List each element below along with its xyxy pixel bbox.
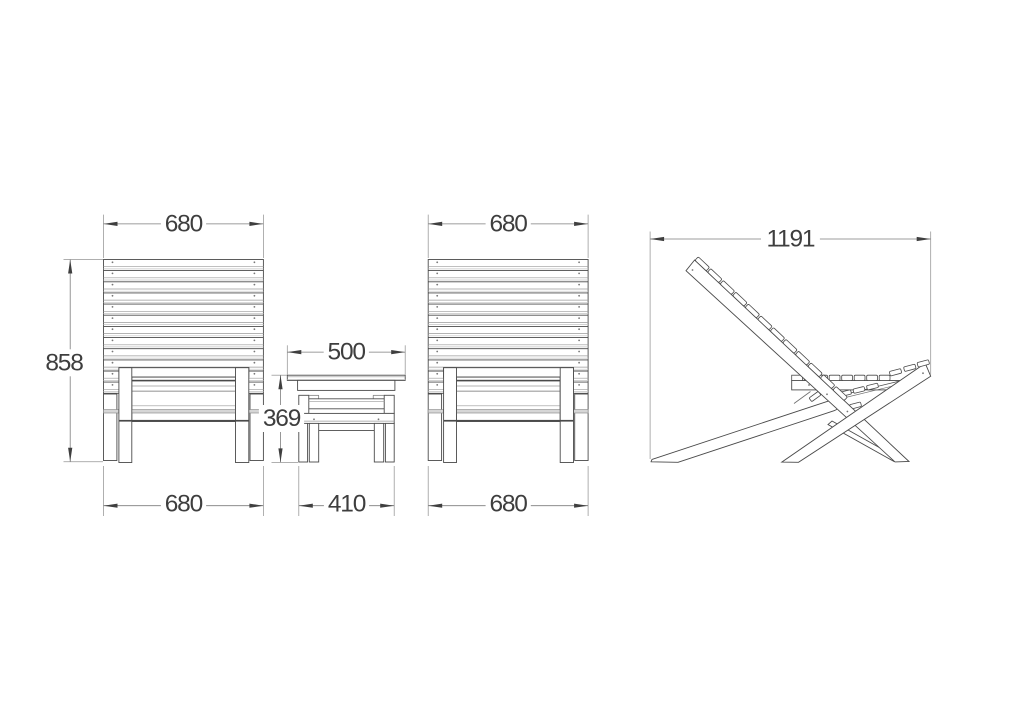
svg-text:369: 369 xyxy=(263,405,301,432)
svg-text:680: 680 xyxy=(489,491,527,518)
svg-text:1191: 1191 xyxy=(766,226,814,253)
svg-text:858: 858 xyxy=(45,349,83,376)
svg-text:680: 680 xyxy=(165,491,203,518)
svg-text:410: 410 xyxy=(328,491,366,518)
svg-text:680: 680 xyxy=(165,210,203,237)
svg-text:680: 680 xyxy=(489,210,527,237)
svg-text:500: 500 xyxy=(328,339,366,366)
